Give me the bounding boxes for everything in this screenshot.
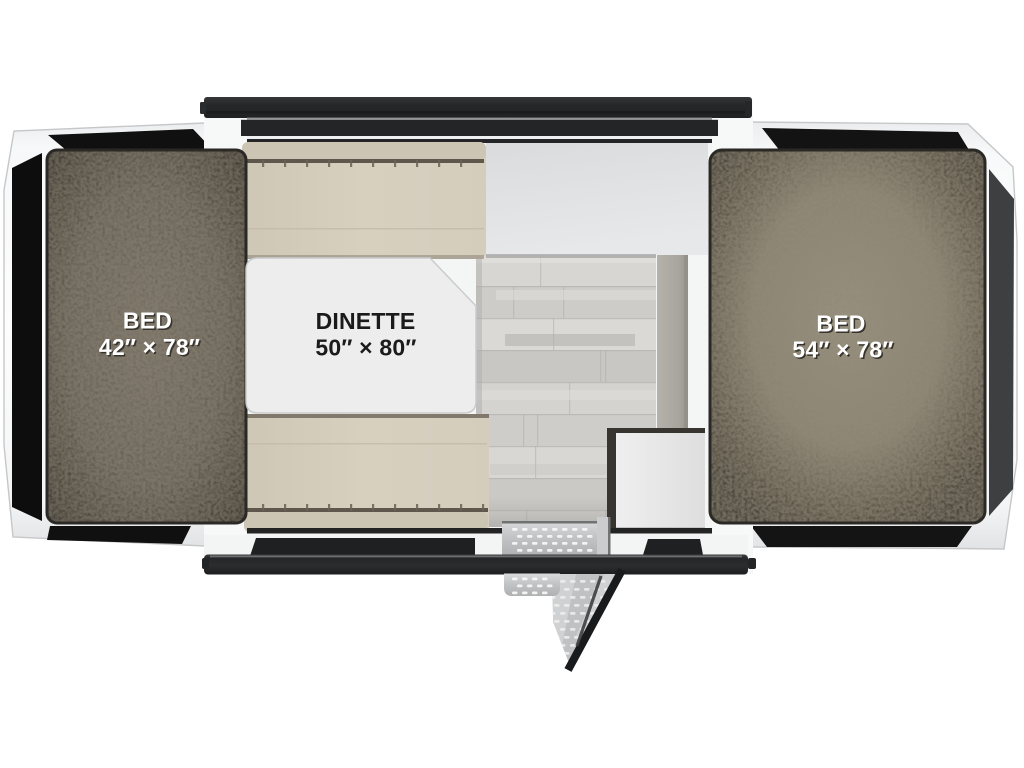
svg-text:54″ × 78″: 54″ × 78″	[792, 337, 893, 363]
svg-text:BED: BED	[123, 308, 172, 334]
svg-text:BED: BED	[816, 311, 865, 337]
svg-text:50″ × 80″: 50″ × 80″	[315, 335, 416, 361]
svg-text:42″ × 78″: 42″ × 78″	[99, 334, 200, 360]
svg-text:DINETTE: DINETTE	[316, 308, 416, 334]
